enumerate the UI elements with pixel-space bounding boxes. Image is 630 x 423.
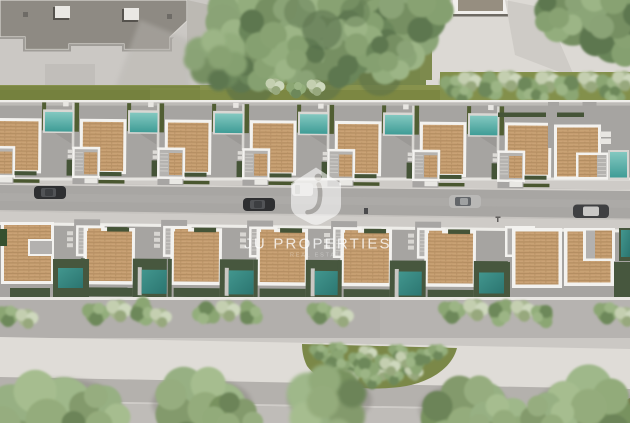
svg-text:REAL ESTATE: REAL ESTATE xyxy=(290,253,346,259)
svg-text:JU PROPERTIES: JU PROPERTIES xyxy=(244,236,392,253)
